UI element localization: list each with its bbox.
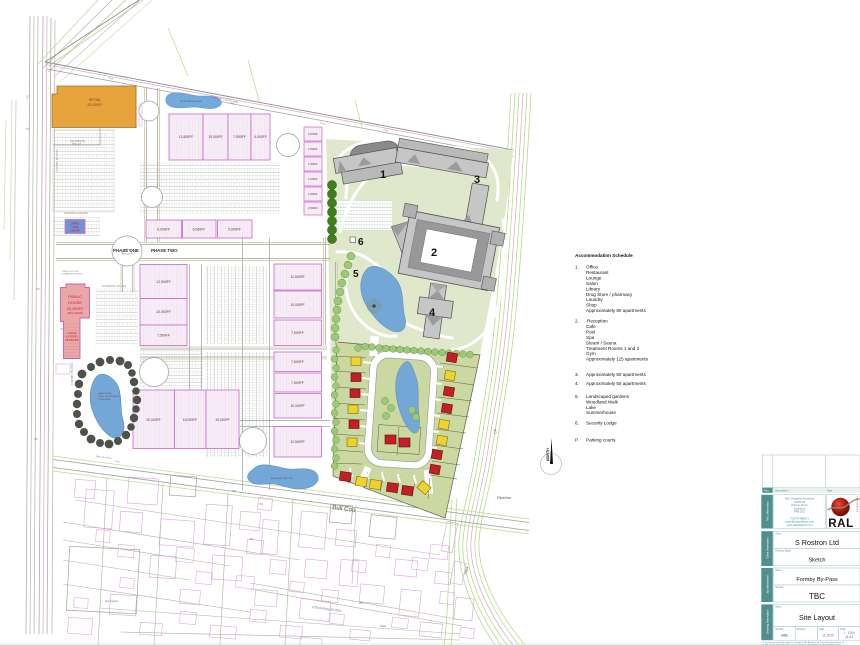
svg-text:7M: 7M [259,502,264,506]
svg-text:TPB: TPB [25,94,30,100]
svg-text:Pool: Pool [586,329,595,334]
svg-text:Date: Date [827,489,833,493]
svg-text:FORMBY BY-PASS: FORMBY BY-PASS [70,362,74,385]
svg-text:RAL Information: RAL Information [766,501,770,521]
svg-text:Client: Client [775,532,781,535]
svg-text:5: 5 [353,269,359,280]
svg-text:7M: 7M [26,127,30,131]
svg-text:Reception: Reception [587,319,608,324]
svg-text:Drawing Information: Drawing Information [766,609,770,634]
svg-text:Supermarket: Supermarket [105,600,119,603]
svg-text:www.ralarchitects.com: www.ralarchitects.com [787,523,813,527]
svg-text:PHASE ONE: PHASE ONE [113,248,139,253]
svg-text:2.: 2. [575,319,579,324]
svg-text:7,500FF: 7,500FF [291,381,304,385]
svg-text:Number: Number [775,586,783,589]
svg-text:a r c h i t e c t s: a r c h i t e c t s [856,496,859,512]
svg-text:Name: Name [775,570,782,572]
svg-text:7,500FF: 7,500FF [291,331,304,335]
svg-text:Lake: Lake [586,405,596,410]
svg-text:Parking courts: Parking courts [586,438,616,443]
svg-text:4,000FF: 4,000FF [254,135,267,139]
svg-text:Client Information: Client Information [766,537,770,559]
svg-text:2,300FF: 2,300FF [308,192,318,196]
svg-text:ATTENUATION POND: ATTENUATION POND [271,477,293,480]
svg-text:12,500FF: 12,500FF [156,280,171,284]
svg-text:Approximately 80 apartments: Approximately 80 apartments [586,308,646,313]
svg-text:Laundry: Laundry [586,297,603,302]
svg-text:G01: G01 [781,634,788,638]
svg-text:TBC: TBC [809,592,825,601]
svg-text:4: 4 [429,307,436,319]
svg-text:25,000FF: 25,000FF [87,103,103,107]
svg-text:RETAIL: RETAIL [89,98,101,102]
svg-text:Mast: Mast [380,624,386,628]
svg-text:11.2019: 11.2019 [822,634,834,638]
svg-text:3.: 3. [575,372,579,377]
svg-text:1.: 1. [575,265,579,270]
svg-text:Salon: Salon [586,281,598,286]
svg-text:P.: P. [575,438,579,443]
svg-text:EXPANSION SPACES: EXPANSION SPACES [64,212,88,215]
svg-text:75e: 75e [249,537,254,541]
svg-text:Landscaped gardens: Landscaped gardens [586,394,630,399]
svg-text:Drug Store / pharmacy: Drug Store / pharmacy [586,292,633,297]
svg-text:RAL: RAL [828,518,853,530]
svg-text:12,500FF: 12,500FF [290,275,305,279]
svg-text:PHASE TWO: PHASE TWO [151,248,178,253]
svg-text:6: 6 [358,237,364,248]
svg-text:Job Information: Job Information [766,575,770,594]
svg-text:Restaurant: Restaurant [586,270,609,275]
svg-text:6.: 6. [575,421,579,426]
svg-text:SPACES: SPACES [72,143,82,146]
svg-text:12,500FF: 12,500FF [179,135,194,139]
svg-text:15,000FF: 15,000FF [183,418,198,422]
svg-text:Approximately 115 apartments: Approximately 115 apartments [586,357,649,362]
svg-text:LB: LB [359,601,363,605]
svg-text:5M: 5M [36,287,40,291]
svg-text:POND + ATTENUATION: POND + ATTENUATION [98,395,121,398]
svg-text:Shop: Shop [586,303,597,308]
svg-text:Revision: Revision [797,629,807,631]
svg-text:Steam / Sauna: Steam / Sauna [586,340,617,345]
svg-text:PUBLIC: PUBLIC [68,294,82,299]
svg-text:Formby By-Pass: Formby By-Pass [796,577,838,583]
svg-text:PR8 1EG: PR8 1EG [794,510,805,514]
svg-text:Spa: Spa [586,335,595,340]
svg-text:2,500FF: 2,500FF [308,206,318,210]
svg-text:75f: 75f [232,489,236,493]
svg-text:Drawing Status: Drawing Status [775,550,791,553]
svg-text:Pipeline: Pipeline [497,495,512,500]
svg-text:Gym: Gym [586,351,596,356]
svg-text:4.: 4. [575,381,579,386]
svg-text:7,500FF: 7,500FF [291,360,304,364]
svg-text:NORTH: NORTH [546,448,550,461]
svg-text:Cafe: Cafe [586,324,596,329]
svg-text:5,000FF: 5,000FF [157,228,170,232]
svg-text:Approximately 50 apartments: Approximately 50 apartments [586,372,646,377]
svg-text:5,000FF: 5,000FF [193,228,206,232]
svg-text:2,875FF: 2,875FF [308,132,318,136]
svg-text:S Rostron Ltd: S Rostron Ltd [795,538,839,547]
svg-text:POND AREA: POND AREA [98,398,111,401]
svg-text:Accommodation Schedule: Accommodation Schedule [575,253,633,258]
svg-text:10,000FF: 10,000FF [156,310,171,314]
svg-text:Lounge: Lounge [586,275,602,280]
svg-text:84 PARKING SPACES: 84 PARKING SPACES [102,285,126,288]
svg-text:Office: Office [586,265,598,270]
svg-text:20,000FF: 20,000FF [146,418,161,422]
svg-text:@ A1: @ A1 [845,635,853,639]
svg-text:Site Layout: Site Layout [799,613,835,622]
svg-text:Library: Library [586,286,601,291]
svg-text:2,300FF: 2,300FF [308,177,318,181]
svg-text:Sketch: Sketch [808,558,825,564]
svg-text:2: 2 [431,247,437,259]
svg-text:Summerhouse: Summerhouse [586,410,616,415]
svg-text:Date: Date [819,628,825,631]
svg-text:2,500FF: 2,500FF [308,147,318,151]
svg-text:Number: Number [775,628,783,631]
svg-text:Pow: Pow [115,460,120,464]
svg-text:Name: Name [775,607,782,609]
svg-text:(9FC LODGE): (9FC LODGE) [67,312,82,315]
svg-text:Security Lodge: Security Lodge [586,421,617,426]
svg-text:ATTENUATION POND: ATTENUATION POND [180,100,202,103]
svg-text:23,250FF: 23,250FF [67,306,84,311]
svg-text:2,300FF: 2,300FF [308,162,318,166]
svg-text:Rev: Rev [764,489,769,493]
svg-text:5.: 5. [575,394,579,399]
svg-text:48 ROOMS: 48 ROOMS [66,339,79,342]
svg-text:Description: Description [775,489,789,493]
svg-text:LANDSCAPED: LANDSCAPED [98,392,113,395]
svg-text:7,500FF: 7,500FF [233,135,246,139]
svg-text:HOUSE: HOUSE [68,300,82,305]
svg-text:10,000FF: 10,000FF [208,135,223,139]
svg-text:1,800FF: 1,800FF [70,229,81,233]
svg-text:5,000FF: 5,000FF [228,228,241,232]
svg-text:7,500FF: 7,500FF [157,334,170,338]
svg-text:10,000FF: 10,000FF [290,404,305,408]
svg-text:Woodland Walk: Woodland Walk [586,399,619,404]
svg-text:3: 3 [474,174,480,186]
svg-text:EXPANSION SPACE: EXPANSION SPACE [62,273,83,276]
svg-text:15,000FF: 15,000FF [215,418,230,422]
svg-text:6M: 6M [34,437,38,441]
svg-text:12,500FF: 12,500FF [290,440,305,444]
svg-text:Treatment Rooms 1 and 2: Treatment Rooms 1 and 2 [586,346,640,351]
svg-text:10,000FF: 10,000FF [290,303,305,307]
svg-text:1: 1 [380,169,386,181]
svg-text:Approximately 50 apartments: Approximately 50 apartments [586,381,646,386]
